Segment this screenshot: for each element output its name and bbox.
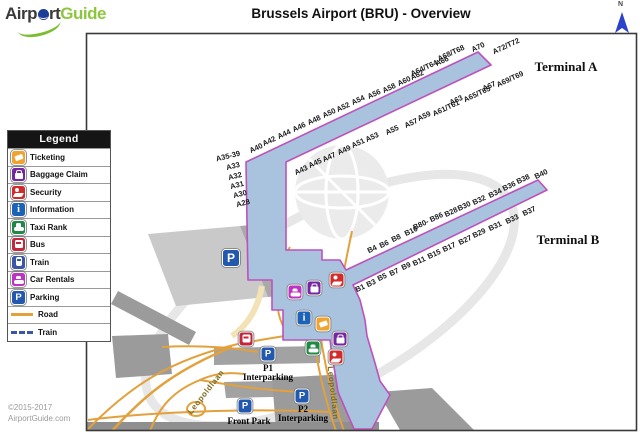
baggage-icon — [12, 168, 25, 181]
legend-item-label: Security — [30, 188, 62, 197]
taxi-icon — [12, 221, 25, 234]
plabel-label: Interparking — [278, 413, 328, 423]
security-icon — [330, 351, 343, 364]
legend-item-taxi: Taxi Rank — [8, 218, 110, 236]
ticketing-icon — [317, 318, 330, 331]
legend-item-security: Security — [8, 183, 110, 201]
legend-item-bus: Bus — [8, 236, 110, 254]
road-line-icon — [11, 313, 33, 316]
ticketing-icon — [12, 151, 25, 164]
legend-item-info: Information — [8, 201, 110, 219]
plabel-label: Front Park — [227, 416, 270, 426]
legend-item-road-line: Road — [8, 306, 110, 324]
bus-icon — [240, 333, 253, 346]
taxi-icon — [307, 342, 320, 355]
legend-item-parking: Parking — [8, 288, 110, 306]
train-line-icon — [11, 331, 33, 334]
legend-item-label: Information — [30, 205, 74, 214]
info-icon — [298, 312, 311, 325]
rentals-icon — [289, 286, 302, 299]
legend: Legend TicketingBaggage ClaimSecurityInf… — [7, 130, 111, 342]
legend-item-rentals: Car Rentals — [8, 271, 110, 289]
legend-item-label: Car Rentals — [30, 275, 74, 284]
plabel-label: Interparking — [243, 372, 293, 382]
page-title: Brussels Airport (BRU) - Overview — [251, 6, 470, 21]
legend-item-label: Parking — [30, 293, 59, 302]
legend-item-ticketing: Ticketing — [8, 148, 110, 166]
legend-item-label: Train — [30, 258, 49, 267]
legend-item-label: Bus — [30, 240, 45, 249]
parking-icon — [12, 291, 25, 304]
parking-icon — [262, 348, 275, 361]
copyright: ©2015-2017 AirportGuide.com — [8, 402, 70, 424]
legend-rows: TicketingBaggage ClaimSecurityInformatio… — [8, 148, 110, 341]
term-label: Terminal B — [537, 232, 600, 248]
compass-north-label: N — [618, 1, 623, 8]
legend-item-label: Road — [38, 310, 58, 319]
page: AirprtGuide Brussels Airport (BRU) - Ove… — [0, 0, 640, 438]
legend-title: Legend — [8, 131, 110, 148]
bus-icon — [12, 238, 25, 251]
rentals-icon — [12, 273, 25, 286]
copyright-years: ©2015-2017 — [8, 402, 70, 413]
airportguide-logo: AirprtGuide — [5, 4, 106, 34]
info-icon — [12, 203, 25, 216]
legend-item-label: Train — [38, 328, 57, 337]
legend-item-label: Ticketing — [30, 153, 65, 162]
parking-icon — [239, 400, 252, 413]
baggage-icon — [308, 282, 321, 295]
legend-item-label: Taxi Rank — [30, 223, 67, 232]
security-icon — [331, 274, 344, 287]
copyright-site: AirportGuide.com — [8, 413, 70, 424]
legend-item-train-line: Train — [8, 323, 110, 341]
term-label: Terminal A — [535, 59, 598, 75]
legend-item-train: Train — [8, 253, 110, 271]
security-icon — [12, 186, 25, 199]
train-icon — [12, 256, 25, 269]
parking-icon — [296, 390, 309, 403]
compass-arrow-icon — [615, 12, 629, 33]
parking-icon — [223, 250, 239, 266]
baggage-icon — [334, 333, 347, 346]
legend-item-baggage: Baggage Claim — [8, 166, 110, 184]
legend-item-label: Baggage Claim — [30, 170, 88, 179]
